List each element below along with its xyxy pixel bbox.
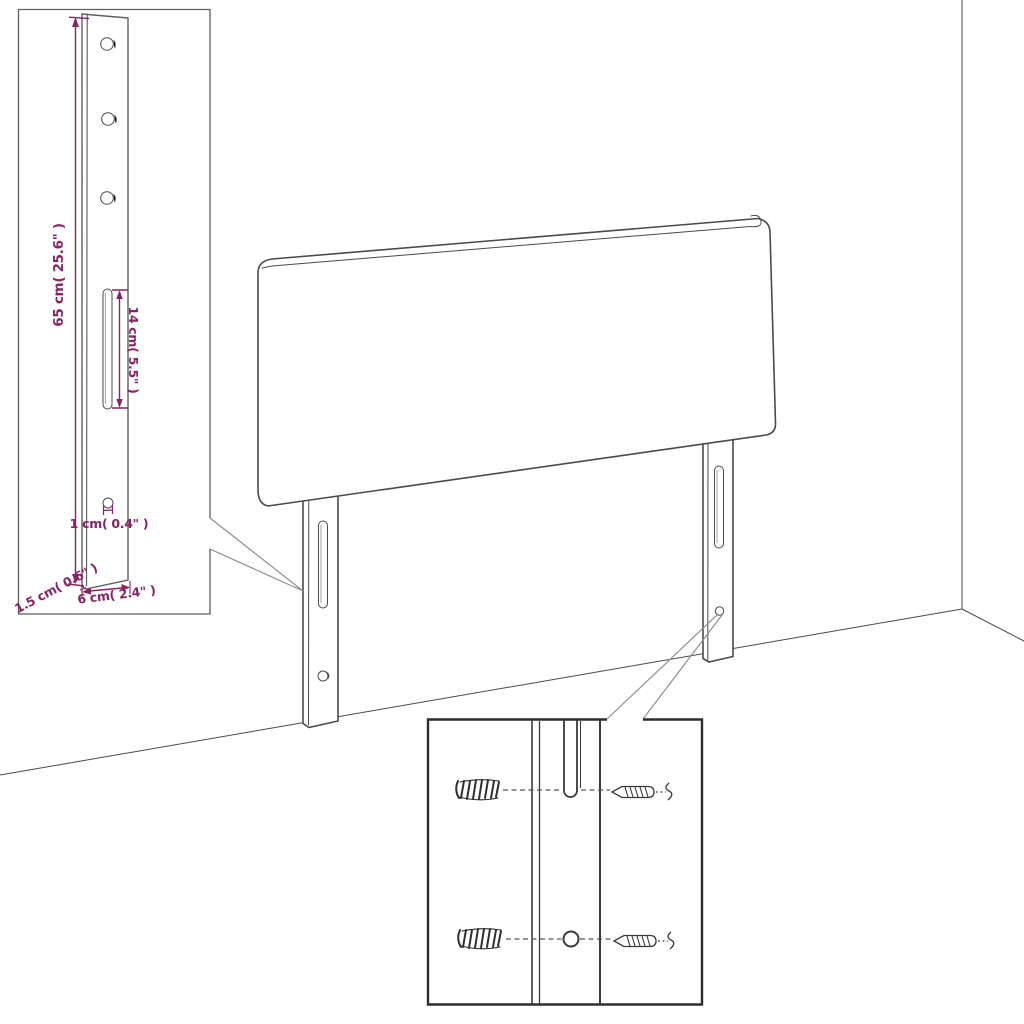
callout-leader-line (210, 549, 303, 591)
right-leg (703, 438, 733, 662)
callout-leader-line (210, 518, 303, 591)
headboard-outline (258, 219, 776, 507)
headboard-panel (258, 215, 776, 506)
bracket-drawing (82, 14, 128, 589)
height-dimension-label: 65 cm( 25.6" ) (51, 223, 67, 327)
bracket-slot (103, 289, 112, 409)
bracket-hole (102, 113, 115, 126)
hardware-box-border (428, 720, 702, 1005)
slot-dimension-label: 14 cm( 5.5" ) (126, 306, 141, 393)
bracket-small-hole (103, 498, 113, 508)
hole-dimension-label: 1 cm( 0.4" ) (70, 516, 149, 531)
headboard-dimension-diagram: 65 cm( 25.6" ) 14 cm( 5.5" ) 1 cm( 0.4" … (0, 0, 1024, 1024)
mounting-hole (715, 607, 723, 615)
hardware-detail-inset (428, 720, 702, 1005)
diagram-canvas: 65 cm( 25.6" ) 14 cm( 5.5" ) 1 cm( 0.4" … (0, 0, 1024, 1024)
floor-line-right (962, 609, 1024, 641)
left-leg (303, 465, 338, 728)
mounting-slot (715, 466, 724, 548)
bracket-hole (101, 38, 114, 51)
mounting-hole (318, 671, 328, 681)
callout-leader-lines (210, 518, 722, 719)
callout-leader-line (643, 615, 722, 719)
mounting-slot (319, 521, 328, 608)
bracket-hole (101, 192, 114, 205)
bracket-detail-inset: 65 cm( 25.6" ) 14 cm( 5.5" ) 1 cm( 0.4" … (12, 10, 210, 617)
